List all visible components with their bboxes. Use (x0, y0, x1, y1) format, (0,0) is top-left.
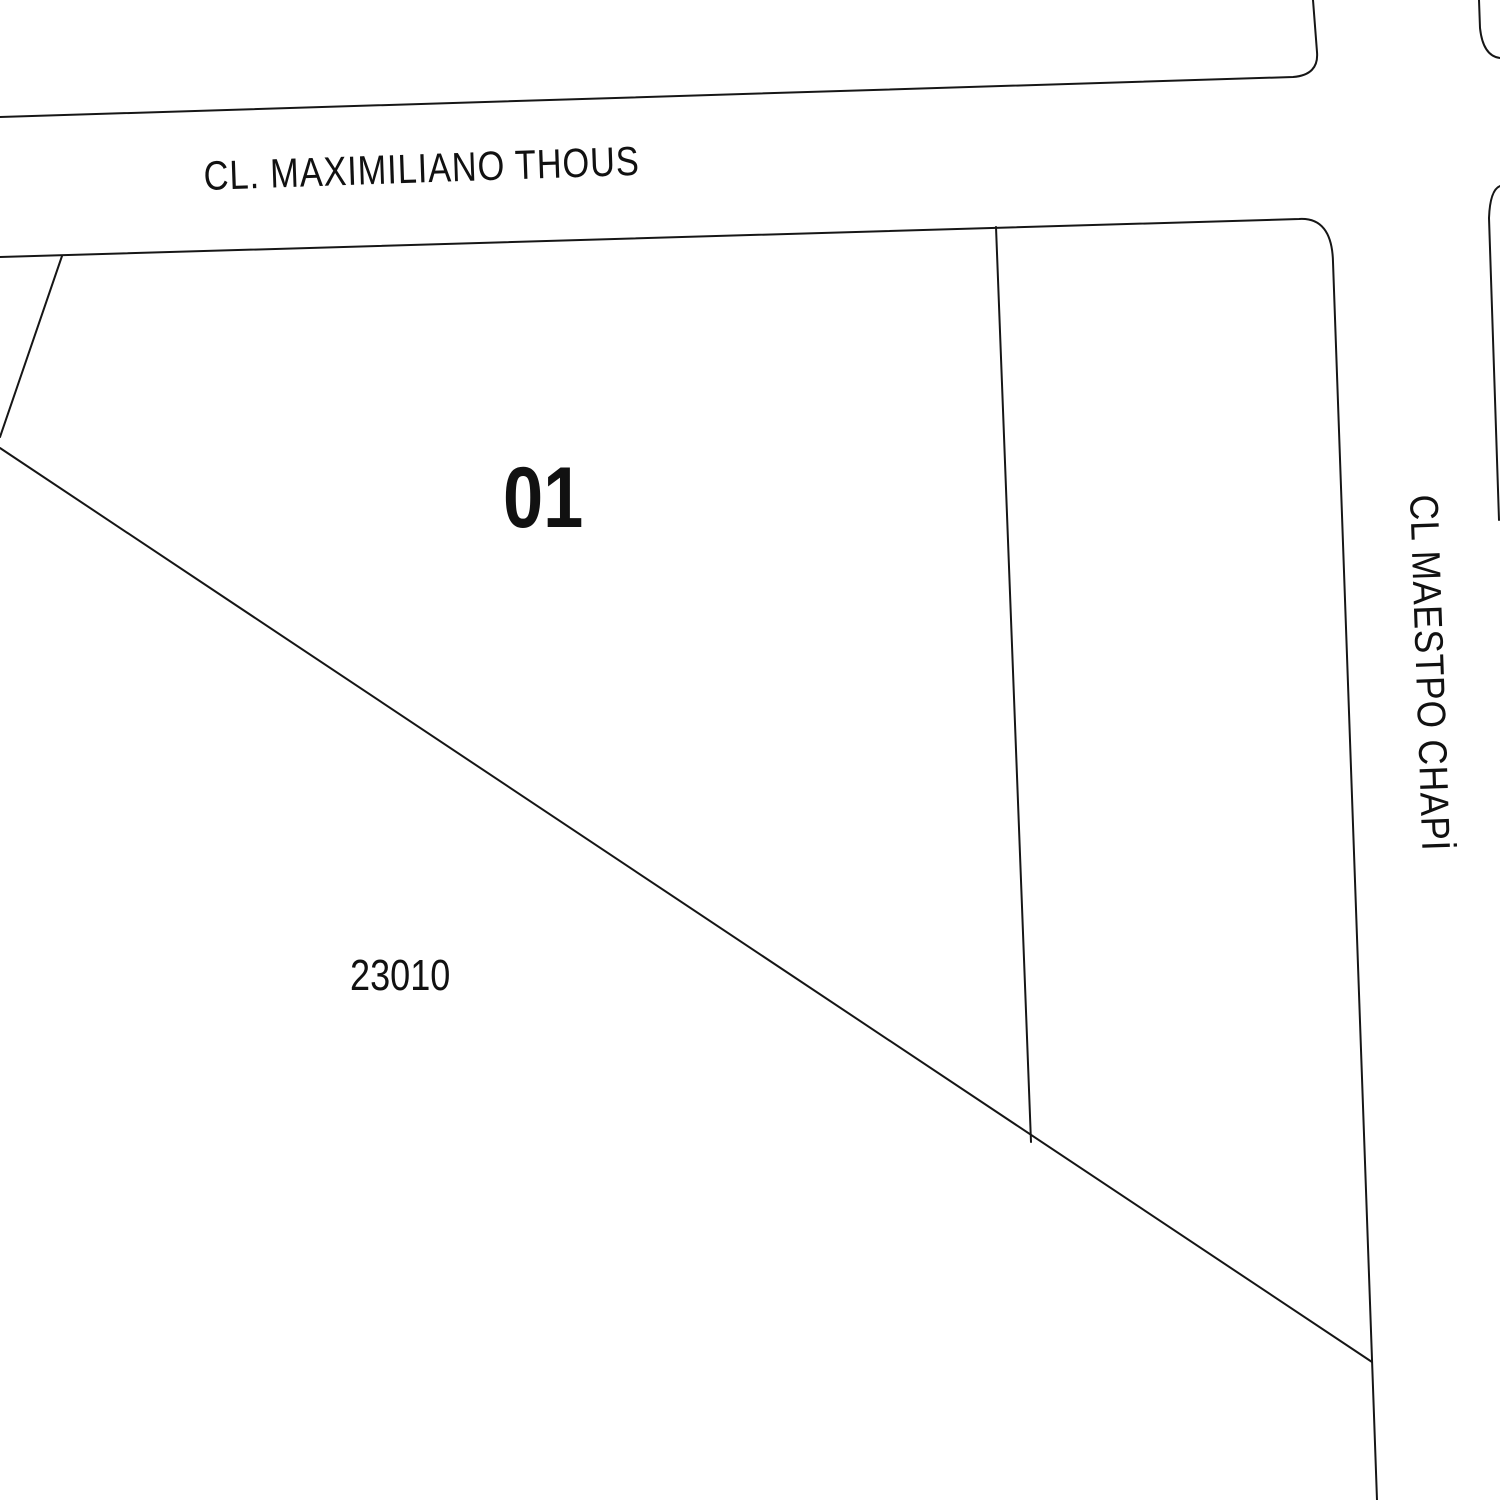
parcel-boundary-lines-layer (0, 0, 1500, 1500)
parcel-subdivision-line (996, 227, 1031, 1142)
cadastral-map-canvas[interactable]: CL. MAXIMILIANO THOUS CL MAESTPO CHAPİ 0… (0, 0, 1500, 1500)
top-block-outline (0, 0, 1317, 117)
parcel-number-label: 01 (503, 455, 583, 541)
top-right-block-outline (1479, 0, 1500, 58)
sliver-parcel-boundary (0, 256, 62, 437)
right-block-outline (1489, 186, 1500, 520)
block-number-label: 23010 (350, 954, 450, 998)
diagonal-parcel-boundary (0, 448, 1372, 1362)
street-band-edge (0, 219, 1377, 1500)
